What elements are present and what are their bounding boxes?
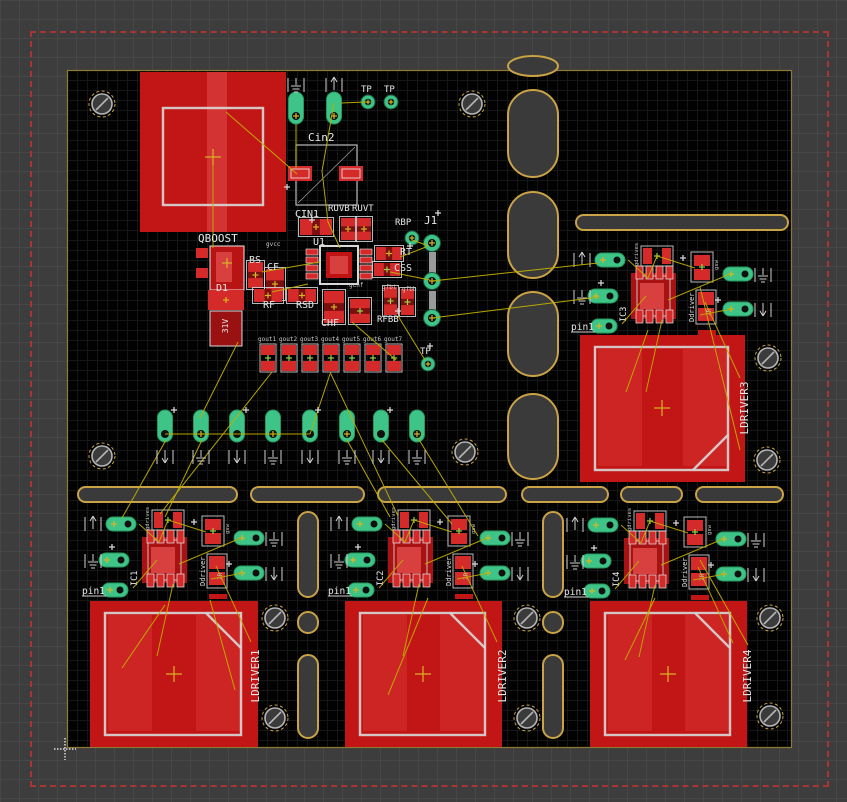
slot-cutout[interactable] (378, 487, 506, 502)
pad-hole (735, 536, 742, 543)
driver-pad-IC3-thermal (683, 349, 727, 466)
refdes-label: CHF (321, 318, 339, 329)
refdes-label: IC3 (619, 307, 629, 322)
component-pad[interactable] (341, 232, 355, 240)
pin1-label: pin1 (571, 322, 594, 333)
refdes-label: RUVT (352, 204, 374, 214)
ic-pin-pad[interactable] (413, 530, 420, 543)
refdes-label: IC2 (376, 571, 386, 586)
net-label: gdrives (145, 507, 151, 530)
copper-bar (698, 330, 716, 335)
capacitor-pad[interactable] (282, 345, 296, 355)
refdes-label: D1 (216, 283, 228, 294)
pad-hole (600, 558, 607, 565)
pin1-label: pin1 (328, 586, 351, 597)
copper-bar (209, 594, 227, 599)
ldriver-label: LDRIVER4 (741, 649, 754, 702)
component-pad[interactable] (694, 269, 710, 280)
cin2-pad[interactable] (339, 166, 363, 181)
pcb-canvas[interactable]: gout1gout2gout3gout4gout5gout6gout7pin1I… (0, 0, 847, 802)
driver-pad-IC2-thermal (440, 615, 484, 731)
component-pad[interactable] (357, 232, 371, 240)
pad-hole (371, 521, 378, 528)
ddriver-label: Ddriver (445, 556, 453, 586)
refdes-label: Cin2 (308, 131, 335, 144)
ic-pin-pad[interactable] (639, 575, 646, 588)
ic-pin-pad[interactable] (656, 266, 663, 279)
component-pad[interactable] (300, 219, 312, 235)
slot-cutout[interactable] (298, 612, 318, 633)
driver-pad-IC4-thermal (608, 615, 652, 731)
ic-pin-pad[interactable] (646, 310, 653, 323)
ic-pin-pad[interactable] (177, 530, 184, 543)
ic-pin-pad[interactable] (659, 531, 666, 544)
pad-hole (607, 522, 614, 529)
ldriver-label: LDRIVER3 (738, 382, 751, 435)
copper-bar (691, 595, 709, 600)
slot-cutout[interactable] (621, 487, 682, 502)
slot-cutout[interactable] (251, 487, 364, 502)
pad-hole (364, 557, 371, 564)
cin2-pad[interactable] (288, 166, 312, 181)
ic-pin-pad[interactable] (423, 530, 430, 543)
pad-hole (125, 521, 132, 528)
ic-pin-pad[interactable] (629, 575, 636, 588)
ic-thermal-pad (633, 548, 657, 574)
ldriver-label: LDRIVER2 (496, 650, 509, 703)
ldriver-label: LDRIVER1 (249, 650, 262, 703)
ratsnest-line (347, 440, 390, 517)
capacitor-pad[interactable] (345, 361, 359, 371)
net-label: gdrives (391, 507, 397, 530)
refdes-label: CF (267, 262, 279, 273)
net-label: gvcc (266, 241, 281, 248)
pad-hole (614, 257, 621, 264)
refdes-label: CIN1 (295, 209, 319, 220)
ic-pin-pad[interactable] (403, 574, 410, 587)
refdes-label: J1 (424, 214, 437, 227)
ic-pin-pad[interactable] (147, 574, 154, 587)
ic-pin-pad[interactable] (649, 531, 656, 544)
component-pad[interactable] (636, 513, 645, 529)
refdes-label: RSD (296, 300, 314, 311)
capacitor-pad[interactable] (303, 361, 317, 371)
pin1-label: pin1 (82, 586, 105, 597)
copper-bar (455, 594, 473, 599)
ic-pin-pad[interactable] (666, 266, 673, 279)
u1-pin-pad[interactable] (360, 273, 372, 279)
refdes-label: TP (420, 347, 431, 357)
component-pad[interactable] (655, 513, 664, 529)
pin1-label: pin1 (564, 587, 587, 598)
component-pad[interactable] (173, 512, 182, 528)
ic-pin-pad[interactable] (636, 310, 643, 323)
slot-cutout[interactable] (78, 487, 237, 502)
u1-pin-pad[interactable] (360, 249, 372, 255)
driver-pad-IC1-thermal (108, 615, 152, 731)
net-label: gsw (707, 524, 713, 535)
ratsnest-line (165, 440, 202, 517)
net-label: gfbt (382, 284, 397, 291)
pad-hole (363, 587, 370, 594)
pad-hole (253, 570, 260, 577)
slot-cutout[interactable] (576, 215, 788, 230)
component-pad[interactable] (687, 534, 703, 545)
pad-hole (253, 535, 260, 542)
driver-pad-IC1-thermal (196, 615, 240, 731)
pad-hole (735, 571, 742, 578)
ic-thermal-pad (151, 547, 175, 573)
slot-cutout[interactable] (508, 394, 558, 479)
ic-pin-pad[interactable] (167, 530, 174, 543)
pad-hole (377, 430, 385, 438)
ic-pin-pad[interactable] (659, 575, 666, 588)
component-pad[interactable] (248, 278, 263, 288)
refdes-label: RT (400, 247, 412, 258)
component-pad[interactable] (451, 533, 467, 544)
refdes-label: U1 (313, 237, 325, 248)
capacitor-pad[interactable] (366, 345, 380, 355)
pcb-objects-layer: gout1gout2gout3gout4gout5gout6gout7pin1I… (0, 0, 847, 802)
net-label: gdrives (627, 508, 633, 531)
net-label: gsw (225, 523, 231, 534)
pad-hole (599, 588, 606, 595)
refdes-label: IC1 (130, 571, 140, 586)
capacitor-pad[interactable] (324, 361, 338, 371)
slot-cutout[interactable] (508, 56, 558, 76)
refdes-label: RF (263, 300, 275, 311)
refdes-label: CSS (394, 263, 412, 274)
net-label: gdrives (634, 243, 640, 266)
oval-through-pad[interactable] (591, 319, 617, 333)
component-pad[interactable] (205, 533, 221, 544)
ratsnest-line (310, 374, 330, 434)
slot-cutout[interactable] (543, 612, 563, 633)
pad-hole (499, 570, 506, 577)
qboost-thermal-strip (207, 72, 227, 232)
component-pad[interactable] (376, 247, 386, 260)
net-label: gout1 (258, 336, 276, 343)
slot-cutout[interactable] (543, 512, 563, 597)
pad-hole (607, 293, 614, 300)
component-pad[interactable] (350, 299, 370, 308)
refdes-label: TP (384, 85, 395, 95)
qboost-pin-pad[interactable] (196, 248, 208, 258)
slot-cutout[interactable] (298, 512, 318, 597)
capacitor-pad[interactable] (366, 361, 380, 371)
oval-through-pad[interactable] (584, 584, 610, 598)
component-pad[interactable] (643, 248, 652, 264)
slot-cutout[interactable] (696, 487, 783, 502)
u1-pin-pad[interactable] (306, 257, 318, 263)
slot-cutout[interactable] (508, 292, 558, 376)
ic-thermal-pad (397, 547, 421, 573)
refdes-label: TP (361, 85, 372, 95)
pad-hole (499, 535, 506, 542)
ic-thermal-pad (640, 283, 664, 309)
component-pad[interactable] (374, 263, 384, 276)
net-label: gout5 (342, 336, 360, 343)
net-label: gsw (714, 259, 720, 270)
capacitor-pad[interactable] (303, 345, 317, 355)
refdes-label: IC4 (612, 572, 622, 587)
oval-through-pad[interactable] (102, 583, 128, 597)
component-pad[interactable] (154, 512, 163, 528)
ddriver-label: Ddriver (199, 556, 207, 586)
component-pad[interactable] (350, 314, 370, 323)
refdes-label: QBOOST (198, 232, 238, 245)
ic-pin-pad[interactable] (423, 574, 430, 587)
capacitor-pad[interactable] (324, 345, 338, 355)
refdes-label: 31V (221, 319, 230, 334)
slot-cutout[interactable] (508, 90, 558, 177)
component-pad[interactable] (401, 305, 414, 315)
ic-pin-pad[interactable] (666, 310, 673, 323)
capacitor-pad[interactable] (387, 361, 401, 371)
qboost-pin-pad[interactable] (196, 268, 208, 278)
net-label: gout4 (321, 336, 339, 343)
pad-hole (118, 557, 125, 564)
ic-pin-pad[interactable] (157, 574, 164, 587)
driver-pad-IC2-thermal (363, 615, 407, 731)
ic-pin-pad[interactable] (393, 574, 400, 587)
ic-pin-pad[interactable] (177, 574, 184, 587)
slot-cutout[interactable] (522, 487, 608, 502)
refdes-label: RFBB (377, 315, 399, 325)
ddriver-label: Ddriver (681, 557, 689, 587)
slot-cutout[interactable] (298, 655, 318, 738)
u1-core (330, 256, 348, 274)
u1-pin-pad[interactable] (306, 249, 318, 255)
pad-hole (606, 323, 613, 330)
j1-connector (429, 252, 436, 274)
pad-hole (742, 271, 749, 278)
refdes-label: RUVB (328, 204, 350, 214)
qboost-core (216, 252, 232, 282)
component-pad[interactable] (384, 304, 397, 315)
oval-through-pad[interactable] (348, 583, 374, 597)
component-pad[interactable] (400, 512, 409, 528)
refdes-label: RBP (395, 218, 412, 228)
refdes-label: BS (249, 255, 261, 266)
net-label: gout7 (384, 336, 402, 343)
capacitor-pad[interactable] (261, 361, 275, 371)
component-pad[interactable] (419, 512, 428, 528)
net-label: gout3 (300, 336, 318, 343)
component-pad[interactable] (662, 248, 671, 264)
u1-pin-pad[interactable] (306, 273, 318, 279)
pad-hole (742, 306, 749, 313)
slot-cutout[interactable] (543, 655, 563, 738)
net-label: gchf (349, 282, 364, 289)
ratsnest-line (322, 171, 328, 222)
component-pad[interactable] (357, 218, 371, 226)
component-pad[interactable] (324, 291, 344, 303)
u1-pin-pad[interactable] (306, 265, 318, 271)
net-label: gout2 (279, 336, 297, 343)
capacitor-pad[interactable] (282, 361, 296, 371)
driver-pad-IC4-thermal (685, 615, 729, 731)
slot-cutout[interactable] (508, 192, 558, 278)
u1-pin-pad[interactable] (360, 257, 372, 263)
capacitor-pad[interactable] (261, 345, 275, 355)
net-label: gfbb (402, 286, 417, 293)
capacitor-pad[interactable] (345, 345, 359, 355)
pad-hole (117, 587, 124, 594)
component-pad[interactable] (341, 218, 355, 226)
ratsnest-line (122, 440, 166, 518)
u1-pin-pad[interactable] (360, 265, 372, 271)
ratsnest-line (200, 342, 238, 418)
ddriver-label: Ddriver (688, 292, 696, 322)
